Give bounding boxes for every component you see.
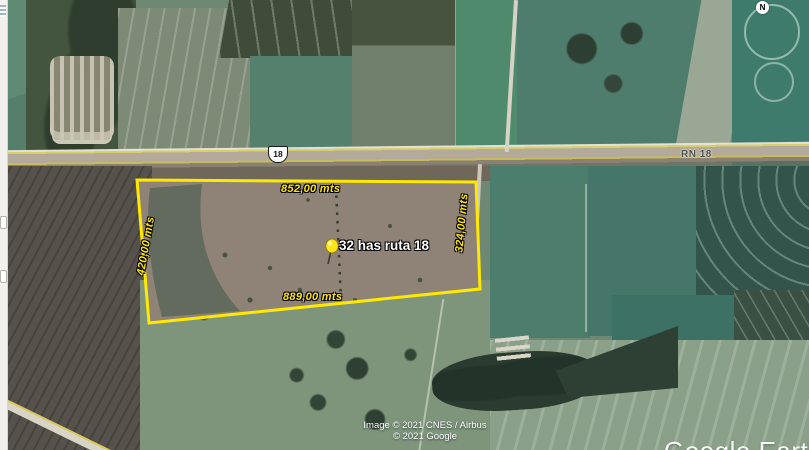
map-canvas[interactable]: 852,00 mts 889,00 mts 420,00 mts 324,00 … — [0, 0, 809, 450]
route-name-label: RN 18 — [681, 149, 712, 160]
map-attribution: Image © 2021 CNES / Airbus © 2021 Google — [335, 420, 515, 442]
farm-buildings-top-left — [50, 56, 114, 140]
compass-north-icon[interactable]: N — [756, 1, 769, 14]
crop-circle-small — [754, 62, 794, 102]
panel-fragment-button[interactable] — [0, 270, 7, 283]
left-panel-edge — [0, 0, 8, 450]
farm-buildings-south — [495, 335, 531, 362]
field-teal-se1 — [490, 166, 590, 338]
placemark-label[interactable]: 32 has ruta 18 — [339, 238, 429, 253]
panel-fragment-top[interactable] — [0, 5, 6, 17]
field-teal-right — [517, 0, 702, 152]
measure-right-side: 324,00 mts — [452, 177, 472, 270]
route-shield-18: 18 — [268, 146, 288, 163]
google-earth-watermark: Google Earth — [664, 436, 809, 450]
field-olive-mid — [352, 0, 458, 152]
measure-top-side: 852,00 mts — [281, 183, 340, 195]
woods-right-corner — [734, 290, 809, 342]
crop-circle-large — [744, 4, 800, 60]
field-boundary-line — [585, 184, 587, 332]
attribution-google: © 2021 Google — [335, 431, 515, 442]
panel-fragment-button[interactable] — [0, 216, 7, 229]
measure-bottom-side: 889,00 mts — [283, 291, 342, 303]
field-teal-mid — [250, 56, 358, 152]
attribution-imagery: Image © 2021 CNES / Airbus — [335, 420, 515, 431]
